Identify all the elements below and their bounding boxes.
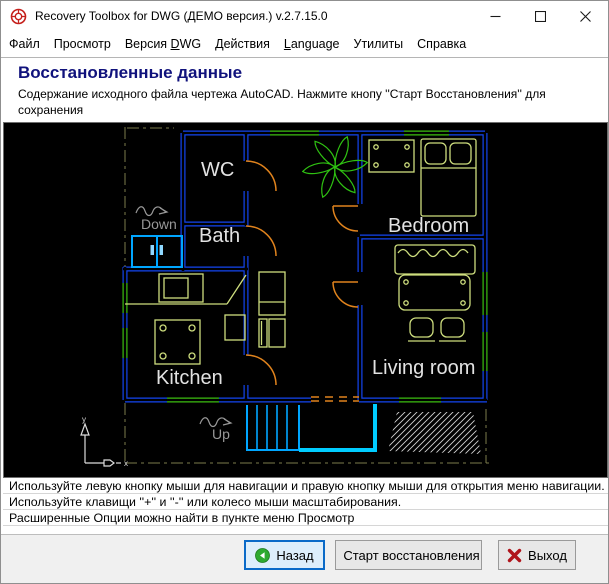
instruction-line-1: Используйте левую кнопку мыши для навига…	[3, 478, 608, 494]
close-icon	[580, 11, 591, 22]
cabinet-handle	[151, 245, 155, 255]
menu-item-help[interactable]: Справка	[410, 37, 473, 51]
room-label-bedroom: Bedroom	[388, 215, 469, 237]
instruction-line-2: Используйте клавищи ''+'' и ''-'' или ко…	[3, 494, 608, 510]
menu-item-actions[interactable]: Действия	[208, 37, 277, 51]
porch-edge	[299, 404, 375, 450]
app-window: Recovery Toolbox for DWG (ДЕМО версия.) …	[0, 0, 609, 584]
description-line-1: Содержание исходного файла чертежа AutoC…	[18, 86, 608, 118]
stairs-down-label: Down	[141, 216, 177, 232]
menu-item-language[interactable]: Language	[277, 37, 347, 51]
title-bar: Recovery Toolbox for DWG (ДЕМО версия.) …	[1, 1, 608, 31]
stairs-up-label: Up	[212, 426, 230, 442]
stairs	[247, 405, 299, 450]
caption-buttons	[473, 1, 608, 31]
minimize-icon	[490, 11, 501, 22]
menu-bar: Файл Просмотр Версия DWG Действия Langua…	[1, 31, 608, 58]
axis-y-label: y	[82, 415, 86, 424]
menu-item-utilities[interactable]: Утилиты	[347, 37, 411, 51]
ucs-axis-icon	[81, 424, 121, 466]
hint-panel: Используйте левую кнопку мыши для навига…	[3, 478, 608, 534]
furniture	[125, 139, 476, 364]
app-logo-icon	[10, 8, 27, 25]
exit-x-icon	[507, 548, 522, 563]
floor-plan: y x WC Bath Bedroom Kitchen Living room …	[4, 123, 607, 477]
maximize-button[interactable]	[518, 1, 563, 31]
cabinet	[132, 236, 182, 267]
maximize-icon	[535, 11, 546, 22]
window-title: Recovery Toolbox for DWG (ДЕМО версия.) …	[35, 9, 328, 23]
page-title: Восстановленные данные	[18, 63, 242, 83]
room-label-bath: Bath	[199, 225, 240, 247]
back-arrow-icon	[255, 548, 270, 563]
cabinet-handle	[160, 245, 164, 255]
menu-item-file[interactable]: Файл	[2, 37, 47, 51]
close-button[interactable]	[563, 1, 608, 31]
button-bar: Назад Старт восстановления Выход	[1, 534, 608, 584]
minimize-button[interactable]	[473, 1, 518, 31]
room-label-living-room: Living room	[372, 357, 475, 379]
drawing-viewport[interactable]: y x WC Bath Bedroom Kitchen Living room …	[3, 122, 608, 478]
menu-item-dwg-version[interactable]: Версия DWG	[118, 37, 208, 51]
back-button[interactable]: Назад	[244, 540, 325, 570]
room-label-wc: WC	[201, 159, 234, 181]
start-recovery-button-label: Старт восстановления	[343, 548, 479, 563]
exit-button-label: Выход	[528, 548, 567, 563]
room-label-kitchen: Kitchen	[156, 367, 223, 389]
header-panel: Восстановленные данные Содержание исходн…	[1, 59, 608, 122]
menu-item-view[interactable]: Просмотр	[47, 37, 118, 51]
axis-x-label: x	[124, 459, 128, 468]
hatched-terrace	[388, 412, 481, 454]
start-recovery-button[interactable]: Старт восстановления	[335, 540, 482, 570]
instruction-line-3: Расширенные Опции можно найти в пункте м…	[3, 510, 608, 526]
back-button-label: Назад	[276, 548, 313, 563]
exit-button[interactable]: Выход	[498, 540, 576, 570]
doors	[246, 161, 359, 401]
